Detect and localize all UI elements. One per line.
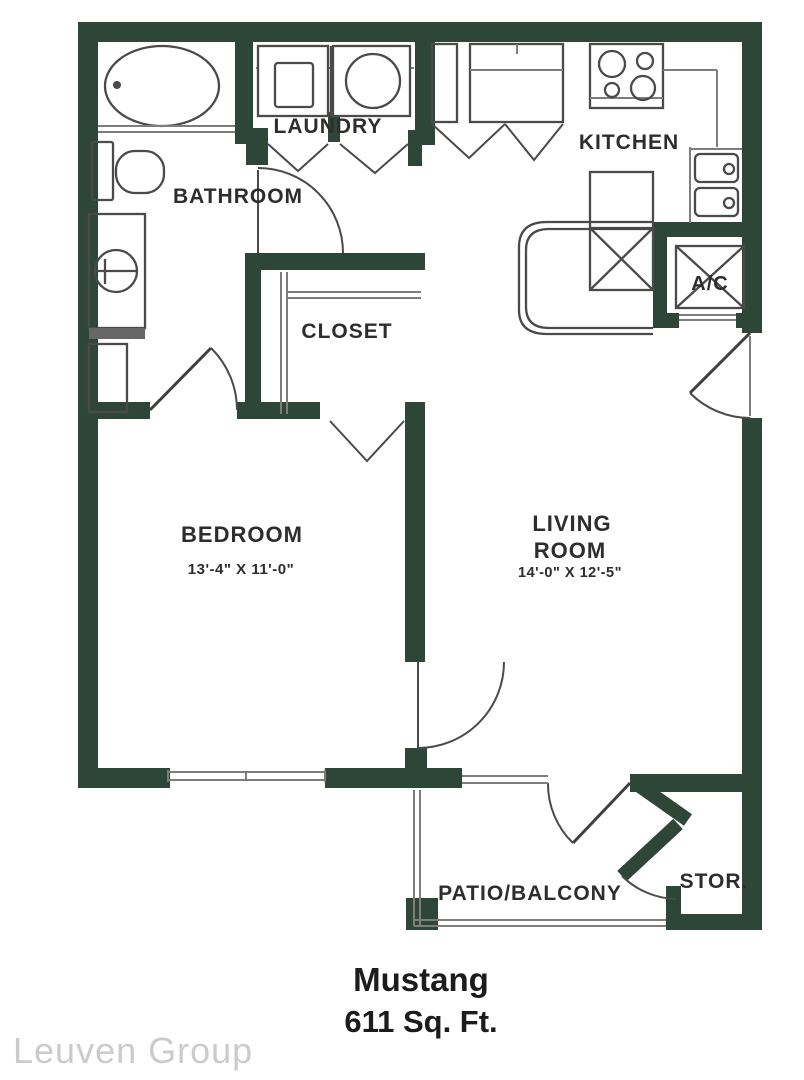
closet-label: CLOSET: [301, 320, 392, 343]
watermark: Leuven Group: [13, 1030, 253, 1071]
bedroom-dimensions: 13'-4" X 11'-0": [188, 561, 294, 578]
wall-bathroom-south: [98, 402, 150, 419]
vanity-base: [89, 328, 145, 339]
floor-plan-drawing: LAUNDRY BATHROOM KITCHEN CLOSET A/C BEDR…: [0, 0, 804, 1080]
bathroom-door-swing: [258, 168, 343, 253]
floor-plan-page: LAUNDRY BATHROOM KITCHEN CLOSET A/C BEDR…: [0, 0, 804, 1080]
living-room-label-line1: LIVING: [532, 511, 611, 536]
bathroom-label: BATHROOM: [173, 185, 303, 208]
burner-icon: [631, 76, 655, 100]
living-room-dimensions: 14'-0" X 12'-5": [518, 565, 622, 581]
faucet-icon: [724, 164, 734, 174]
wall-closet-north: [245, 253, 425, 270]
wall-ac-north: [653, 222, 762, 237]
bathtub: [98, 46, 235, 132]
laundry-bifold-right: [340, 144, 408, 173]
patio-door-leaf: [573, 783, 630, 843]
wall-right-lower: [742, 418, 762, 930]
wall-top: [78, 22, 762, 42]
entry-door-leaf: [690, 333, 750, 393]
kitchen-sink-basin-2: [695, 188, 738, 216]
burner-icon: [599, 51, 625, 77]
refrigerator: [470, 44, 563, 122]
burner-icon: [637, 53, 653, 69]
storage-door-leaf: [622, 824, 678, 876]
bar-counter-outer: [519, 222, 653, 334]
walls-angled: [622, 782, 688, 876]
living-room-label-line2: ROOM: [534, 538, 606, 563]
wall-bedroom-south-left: [78, 768, 170, 788]
cabinet-door-swing-left: [432, 124, 505, 158]
ac-louver-door: [679, 315, 736, 320]
wall-storage-south: [666, 914, 762, 930]
washer: [258, 46, 328, 116]
bathtub-drain-icon: [113, 81, 121, 89]
wall-laundry-stub-left: [235, 128, 268, 144]
toilet-bowl: [116, 151, 164, 193]
wall-bedroom-living-divider: [405, 402, 425, 662]
bedroom-window: [168, 770, 325, 782]
bedroom-door-swing: [418, 662, 504, 748]
storage-label: STOR.: [680, 870, 749, 893]
patio-railing-bottom: [414, 920, 666, 926]
sink-faucet-icon: [95, 259, 137, 284]
island-cabinet: [590, 172, 653, 290]
wall-bath-laundry-divider: [235, 42, 253, 143]
wall-ac-west: [653, 222, 667, 328]
closet-interior: [281, 272, 421, 461]
patio-door-swing: [548, 783, 573, 843]
plan-title: Mustang: [353, 961, 489, 998]
burner-icon: [605, 83, 619, 97]
wall-hall-hinge-post: [246, 143, 268, 165]
laundry-label: LAUNDRY: [274, 115, 383, 138]
laundry-bifold-left: [268, 144, 328, 171]
refrigerator-detail: [470, 44, 563, 70]
dryer: [333, 46, 410, 116]
bedroom-label: BEDROOM: [181, 522, 303, 547]
wall-ac-south-right: [736, 313, 762, 328]
pantry-cabinet: [432, 44, 457, 122]
wall-laundry-stub-right: [408, 130, 422, 166]
wall-closet-west: [245, 253, 261, 419]
bedroom-bath-door-swing: [211, 348, 237, 410]
wall-closet-south-stub: [237, 402, 320, 419]
patio-window: [462, 776, 548, 783]
laundry-appliances: [256, 46, 414, 173]
wall-divider-south-stub: [405, 748, 427, 788]
tub-deck-edge: [98, 126, 235, 132]
ac-label: A/C: [691, 273, 728, 295]
closet-shelving: [281, 272, 421, 414]
bedroom-bath-door-leaf: [150, 348, 211, 410]
toilet: [92, 142, 164, 200]
kitchen-sink-basin-1: [695, 154, 738, 182]
kitchen-label: KITCHEN: [579, 131, 679, 154]
wall-ac-south-left: [653, 313, 679, 328]
closet-bifold-door: [330, 421, 404, 461]
wall-bedroom-south-right: [325, 768, 462, 788]
plan-area: 611 Sq. Ft.: [344, 1004, 497, 1039]
island-x-detail: [590, 228, 653, 290]
entry-door-swing: [690, 393, 750, 418]
cabinet-door-swing-right: [505, 124, 563, 160]
patio-label: PATIO/BALCONY: [438, 882, 622, 905]
faucet-icon: [724, 198, 734, 208]
